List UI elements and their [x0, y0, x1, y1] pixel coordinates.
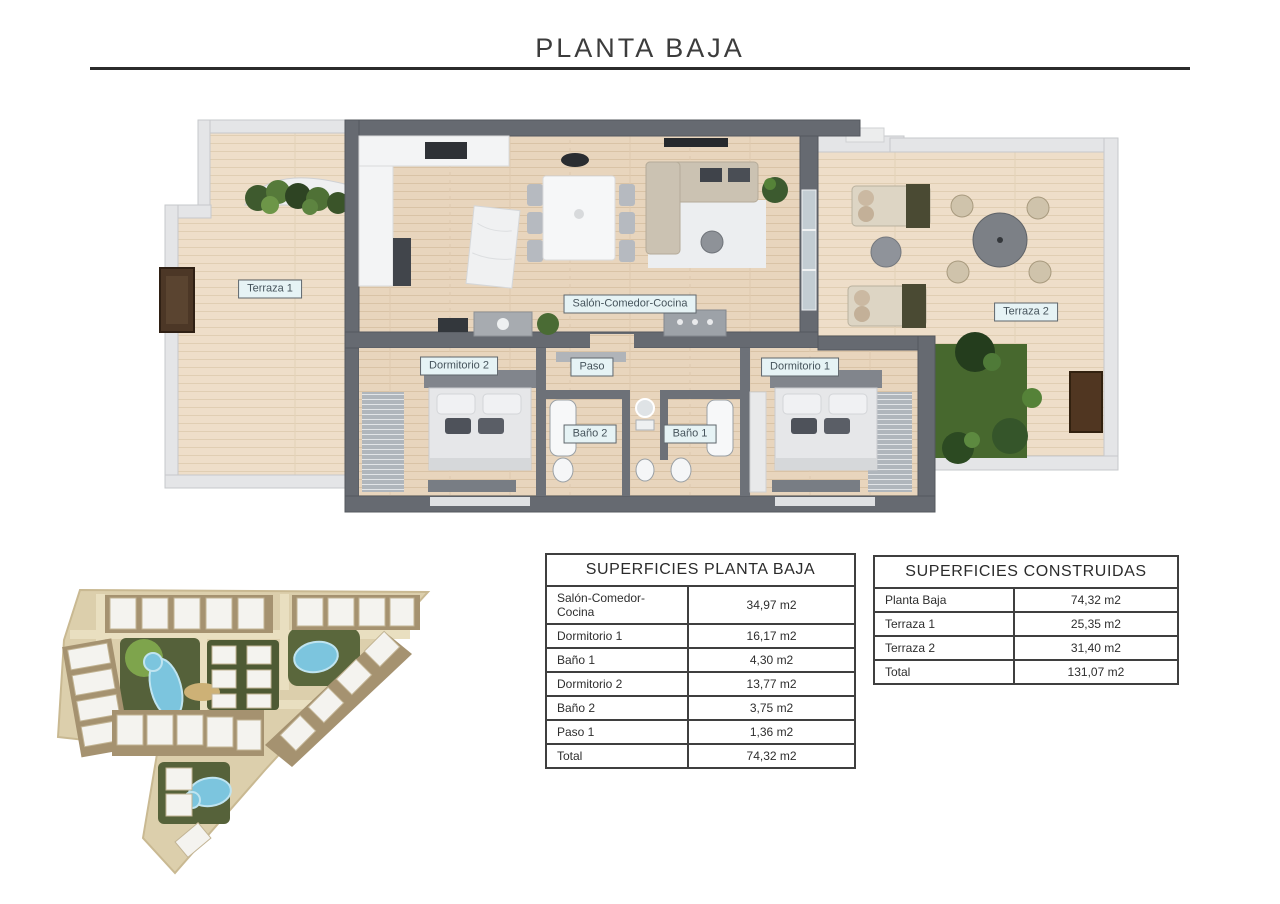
superficies-planta-baja-table: SUPERFICIES PLANTA BAJA Salón-Comedor-Co…: [545, 553, 856, 769]
cell-label: Dormitorio 2: [546, 672, 688, 696]
table-row: Terraza 231,40 m2: [874, 636, 1178, 660]
bedroom1-door: [750, 392, 766, 492]
room-label-salon: Salón-Comedor-Cocina: [564, 295, 697, 314]
table-title-construidas: SUPERFICIES CONSTRUIDAS: [874, 556, 1178, 588]
toilet-2: [553, 458, 573, 482]
table-row: Baño 23,75 m2: [546, 696, 855, 720]
table-row: Paso 11,36 m2: [546, 720, 855, 744]
cell-label: Baño 1: [546, 648, 688, 672]
cell-label: Paso 1: [546, 720, 688, 744]
table-row: Total131,07 m2: [874, 660, 1178, 684]
bedroom1-window: [775, 497, 875, 506]
page: PLANTA BAJA: [0, 0, 1280, 904]
room-label-dormitorio-1: Dormitorio 1: [761, 358, 839, 377]
table-row: Total74,32 m2: [546, 744, 855, 768]
living-window: [802, 190, 816, 310]
cell-value: 74,32 m2: [688, 744, 855, 768]
cell-label: Salón-Comedor-Cocina: [546, 586, 688, 624]
coffee-table: [701, 231, 723, 253]
superficies-construidas-table: SUPERFICIES CONSTRUIDAS Planta Baja74,32…: [873, 555, 1179, 685]
cell-value: 34,97 m2: [688, 586, 855, 624]
side-table: [871, 237, 901, 267]
tv: [664, 138, 728, 147]
cell-value: 131,07 m2: [1014, 660, 1178, 684]
cell-value: 74,32 m2: [1014, 588, 1178, 612]
table-row: Planta Baja74,32 m2: [874, 588, 1178, 612]
room-label-terraza-2: Terraza 2: [994, 303, 1058, 322]
terraza-1-area: [160, 120, 352, 488]
cell-label: Dormitorio 1: [546, 624, 688, 648]
cell-label: Planta Baja: [874, 588, 1014, 612]
cooktop: [425, 142, 467, 159]
cell-label: Terraza 1: [874, 612, 1014, 636]
terrace2-door: [1070, 372, 1102, 432]
floor-plan: [0, 0, 1280, 545]
lounge-chair-2: [848, 284, 926, 328]
room-label-bano-2: Baño 2: [564, 425, 617, 444]
cell-value: 31,40 m2: [1014, 636, 1178, 660]
room-label-terraza-1: Terraza 1: [238, 280, 302, 299]
bedroom2-blinds: [362, 392, 404, 492]
cell-label: Baño 2: [546, 696, 688, 720]
cell-value: 3,75 m2: [688, 696, 855, 720]
cell-value: 16,17 m2: [688, 624, 855, 648]
mirror: [636, 399, 654, 417]
table-row: Terraza 125,35 m2: [874, 612, 1178, 636]
cell-value: 25,35 m2: [1014, 612, 1178, 636]
cell-value: 4,30 m2: [688, 648, 855, 672]
ceiling-fan: [561, 153, 589, 167]
room-label-dormitorio-2: Dormitorio 2: [420, 357, 498, 376]
lounge-chair-1: [852, 184, 930, 228]
table-row: Dormitorio 116,17 m2: [546, 624, 855, 648]
bedroom2-window: [430, 497, 530, 506]
cell-label: Total: [874, 660, 1014, 684]
table-row: Salón-Comedor-Cocina34,97 m2: [546, 586, 855, 624]
cell-value: 13,77 m2: [688, 672, 855, 696]
bedroom2-rug: [428, 480, 516, 492]
room-label-paso: Paso: [570, 358, 613, 377]
fridge: [393, 238, 411, 286]
living-paso-opening: [590, 334, 634, 348]
bedroom1-rug: [772, 480, 860, 492]
toilet-1: [671, 458, 691, 482]
site-plan: [40, 580, 520, 890]
table-row: Dormitorio 213,77 m2: [546, 672, 855, 696]
kitchen-island: [466, 206, 520, 288]
cell-label: Terraza 2: [874, 636, 1014, 660]
room-label-bano-1: Baño 1: [664, 425, 717, 444]
table-title-planta-baja: SUPERFICIES PLANTA BAJA: [546, 554, 855, 586]
plant-small: [537, 313, 559, 335]
washbasin: [636, 420, 654, 430]
table-row: Baño 14,30 m2: [546, 648, 855, 672]
cell-label: Total: [546, 744, 688, 768]
cell-value: 1,36 m2: [688, 720, 855, 744]
